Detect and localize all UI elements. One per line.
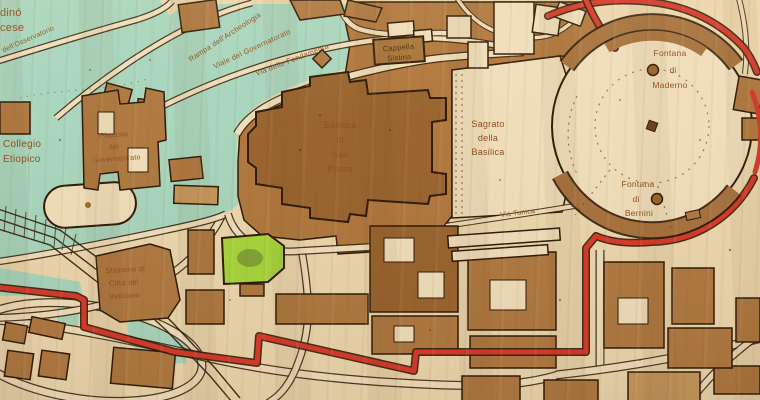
building <box>447 16 471 38</box>
building <box>494 2 534 54</box>
palazzo-governatorato <box>82 88 166 190</box>
building <box>387 21 414 37</box>
building <box>276 294 368 324</box>
courtyard <box>394 326 414 342</box>
svg-text:Collegio: Collegio <box>3 139 41 150</box>
fountain-maderno-marker <box>648 65 659 76</box>
svg-text:Bernini: Bernini <box>625 208 653 218</box>
lawn-fountain-blob <box>237 249 263 267</box>
svg-text:Fontana: Fontana <box>622 179 655 189</box>
building <box>186 290 224 324</box>
svg-text:di: di <box>632 194 639 204</box>
building <box>3 322 28 344</box>
reservoir-dot <box>85 202 91 208</box>
building <box>736 298 760 342</box>
building <box>742 118 760 140</box>
svg-text:Etiopico: Etiopico <box>3 154 41 165</box>
building <box>628 372 700 400</box>
svg-text:Maderno: Maderno <box>652 80 687 90</box>
svg-text:di: di <box>336 135 344 145</box>
building <box>38 350 69 380</box>
collegio-etiopico-building <box>0 102 30 134</box>
building <box>178 0 220 33</box>
building <box>4 350 33 379</box>
courtyard <box>384 238 414 262</box>
svg-text:del: del <box>109 144 120 152</box>
building <box>169 156 203 181</box>
courtyard <box>490 280 526 310</box>
label-cappella-sistina: Cappella Sistina <box>382 42 416 64</box>
label-giardino-fragment: dinó <box>0 7 22 19</box>
svg-text:Fontana: Fontana <box>654 48 687 58</box>
building <box>462 376 520 400</box>
svg-text:Vaticano: Vaticano <box>109 290 140 301</box>
building <box>714 366 760 394</box>
building <box>672 268 714 324</box>
svg-text:Basilica: Basilica <box>471 147 504 157</box>
svg-text:Basilica: Basilica <box>323 120 356 130</box>
fountain-bernini-marker <box>652 194 663 205</box>
label-francese-fragment: cese <box>0 22 24 34</box>
wooden-map-photo: dinó cese dell'Osservatorio Rampa dell'A… <box>0 0 760 400</box>
courtyard <box>418 272 444 298</box>
building <box>240 284 264 296</box>
building <box>468 42 488 68</box>
courtyard <box>98 112 114 134</box>
svg-text:Pietro: Pietro <box>327 164 352 174</box>
svg-text:della: della <box>478 133 498 143</box>
svg-text:San: San <box>332 150 349 160</box>
building <box>544 380 598 400</box>
building <box>668 328 732 368</box>
svg-text:Sagrato: Sagrato <box>471 119 504 129</box>
svg-text:di: di <box>669 65 676 75</box>
building <box>174 185 219 205</box>
vatican-map: dinó cese dell'Osservatorio Rampa dell'A… <box>0 0 760 400</box>
courtyard <box>618 298 648 324</box>
building <box>188 230 214 274</box>
svg-text:Città del: Città del <box>109 277 139 288</box>
